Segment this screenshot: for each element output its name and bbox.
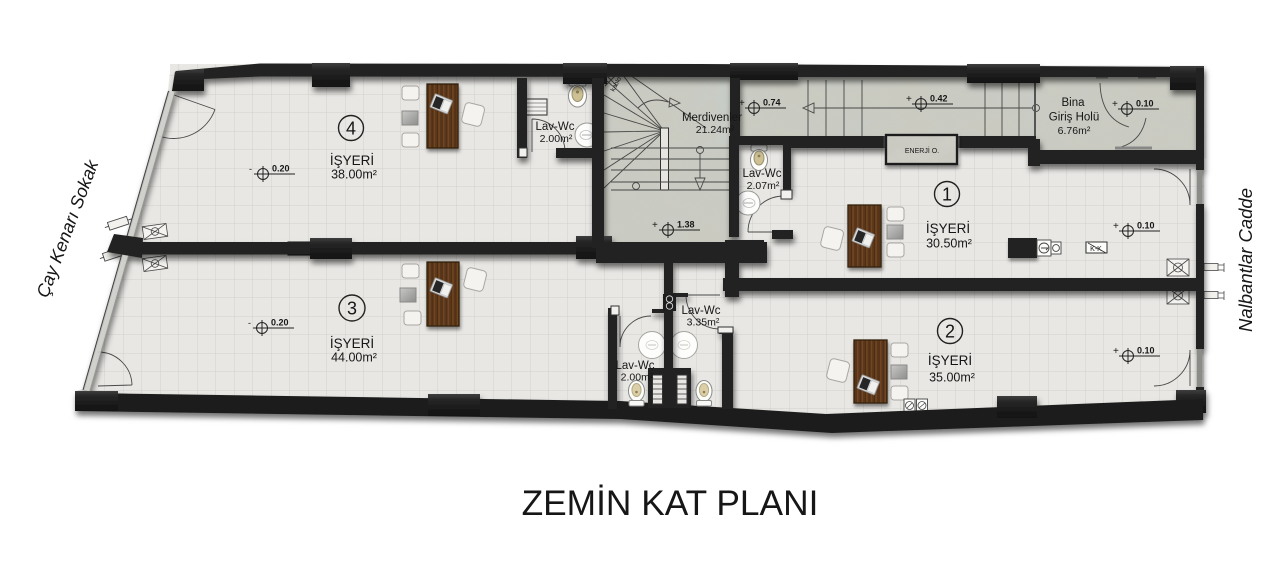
svg-text:ZEMİN KAT PLANI: ZEMİN KAT PLANI bbox=[522, 484, 819, 523]
svg-text:+: + bbox=[1113, 346, 1119, 357]
svg-text:0.74: 0.74 bbox=[763, 98, 781, 108]
svg-text:Lav-Wc: Lav-Wc bbox=[536, 121, 575, 133]
svg-text:38.00m²: 38.00m² bbox=[331, 168, 377, 182]
svg-text:1.38: 1.38 bbox=[677, 220, 695, 230]
svg-text:30.50m²: 30.50m² bbox=[926, 237, 972, 251]
svg-text:0.10: 0.10 bbox=[1137, 221, 1155, 231]
svg-text:+: + bbox=[739, 98, 745, 109]
svg-text:0.10: 0.10 bbox=[1136, 99, 1154, 109]
svg-text:4: 4 bbox=[346, 119, 356, 139]
svg-text:-: - bbox=[249, 164, 252, 174]
svg-text:Lav-Wc: Lav-Wc bbox=[682, 305, 721, 317]
svg-text:0.20: 0.20 bbox=[272, 164, 290, 174]
svg-text:Çay Kenarı Sokak: Çay Kenarı Sokak bbox=[33, 157, 103, 301]
svg-text:İŞYERİ: İŞYERİ bbox=[330, 153, 374, 168]
svg-text:Lav-Wc: Lav-Wc bbox=[743, 168, 782, 180]
svg-text:3: 3 bbox=[347, 299, 357, 319]
svg-text:+: + bbox=[906, 94, 912, 105]
svg-text:İŞYERİ: İŞYERİ bbox=[926, 221, 970, 236]
svg-text:2.00m²: 2.00m² bbox=[540, 133, 573, 145]
svg-text:21.24m²: 21.24m² bbox=[696, 124, 735, 136]
svg-text:Merdivenler: Merdivenler bbox=[682, 112, 742, 124]
svg-text:Giriş Holü: Giriş Holü bbox=[1049, 112, 1099, 124]
svg-text:2.07m²: 2.07m² bbox=[747, 180, 780, 192]
svg-text:2.00m²: 2.00m² bbox=[621, 372, 654, 384]
svg-text:0.20: 0.20 bbox=[271, 318, 289, 328]
svg-text:6.76m²: 6.76m² bbox=[1058, 125, 1091, 137]
svg-text:44.00m²: 44.00m² bbox=[331, 351, 377, 365]
svg-text:0.42: 0.42 bbox=[930, 94, 948, 104]
svg-text:+: + bbox=[1113, 221, 1119, 232]
svg-text:Nalbantlar Cadde: Nalbantlar Cadde bbox=[1235, 188, 1256, 332]
svg-text:Bina: Bina bbox=[1061, 97, 1085, 109]
svg-text:ENERJİ O.: ENERJİ O. bbox=[905, 146, 939, 155]
svg-text:2: 2 bbox=[945, 322, 955, 342]
svg-text:İŞYERİ: İŞYERİ bbox=[928, 353, 972, 368]
svg-text:İŞYERİ: İŞYERİ bbox=[330, 336, 374, 351]
svg-text:-: - bbox=[248, 318, 251, 328]
svg-text:0.10: 0.10 bbox=[1137, 346, 1155, 356]
svg-text:+: + bbox=[1112, 99, 1118, 110]
svg-text:+: + bbox=[652, 220, 658, 231]
svg-text:Lav-Wc: Lav-Wc bbox=[616, 360, 655, 372]
svg-text:35.00m²: 35.00m² bbox=[929, 371, 975, 385]
svg-text:3.35m²: 3.35m² bbox=[687, 317, 720, 329]
svg-text:1: 1 bbox=[942, 185, 952, 205]
